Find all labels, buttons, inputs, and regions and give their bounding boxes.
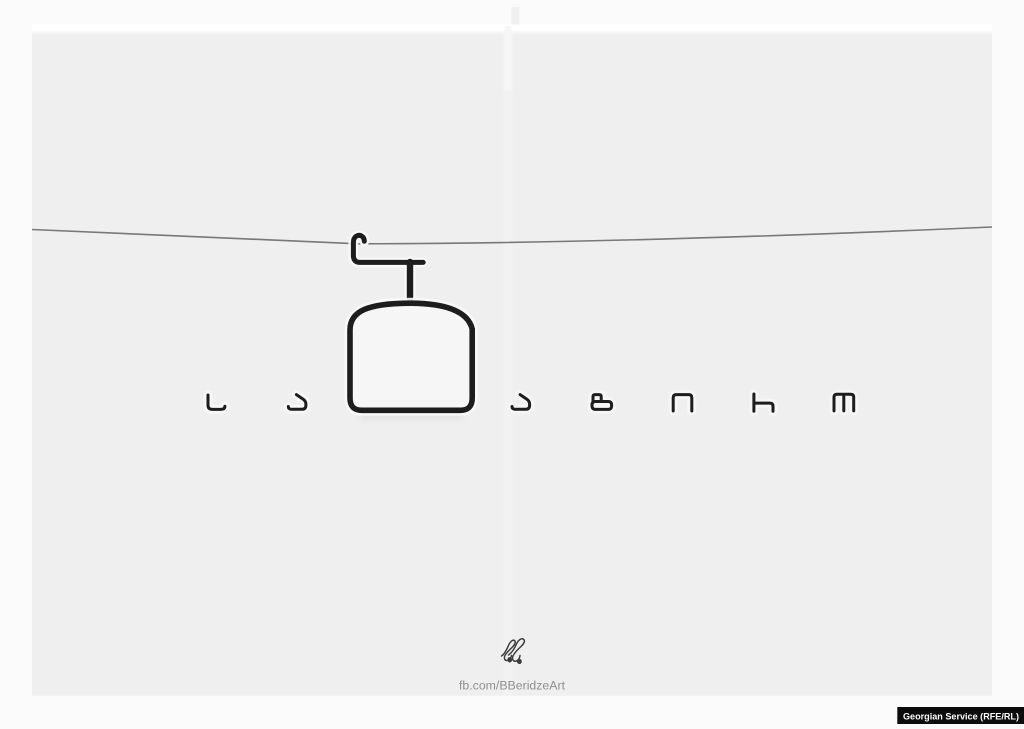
svg-text:fb.com/BBeridzeArt: fb.com/BBeridzeArt [459, 678, 566, 692]
svg-text:Georgian Service (RFE/RL): Georgian Service (RFE/RL) [903, 711, 1019, 722]
